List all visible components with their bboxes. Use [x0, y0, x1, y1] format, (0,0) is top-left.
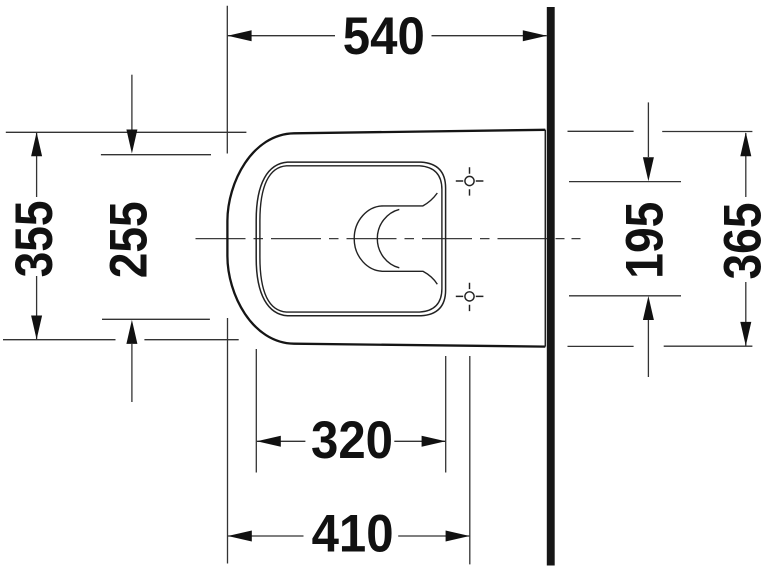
svg-text:410: 410 — [312, 504, 394, 563]
svg-text:540: 540 — [343, 7, 425, 66]
svg-text:255: 255 — [99, 201, 158, 278]
svg-text:365: 365 — [714, 203, 773, 280]
svg-text:195: 195 — [616, 202, 675, 279]
svg-text:355: 355 — [5, 200, 64, 277]
svg-text:320: 320 — [311, 411, 393, 470]
